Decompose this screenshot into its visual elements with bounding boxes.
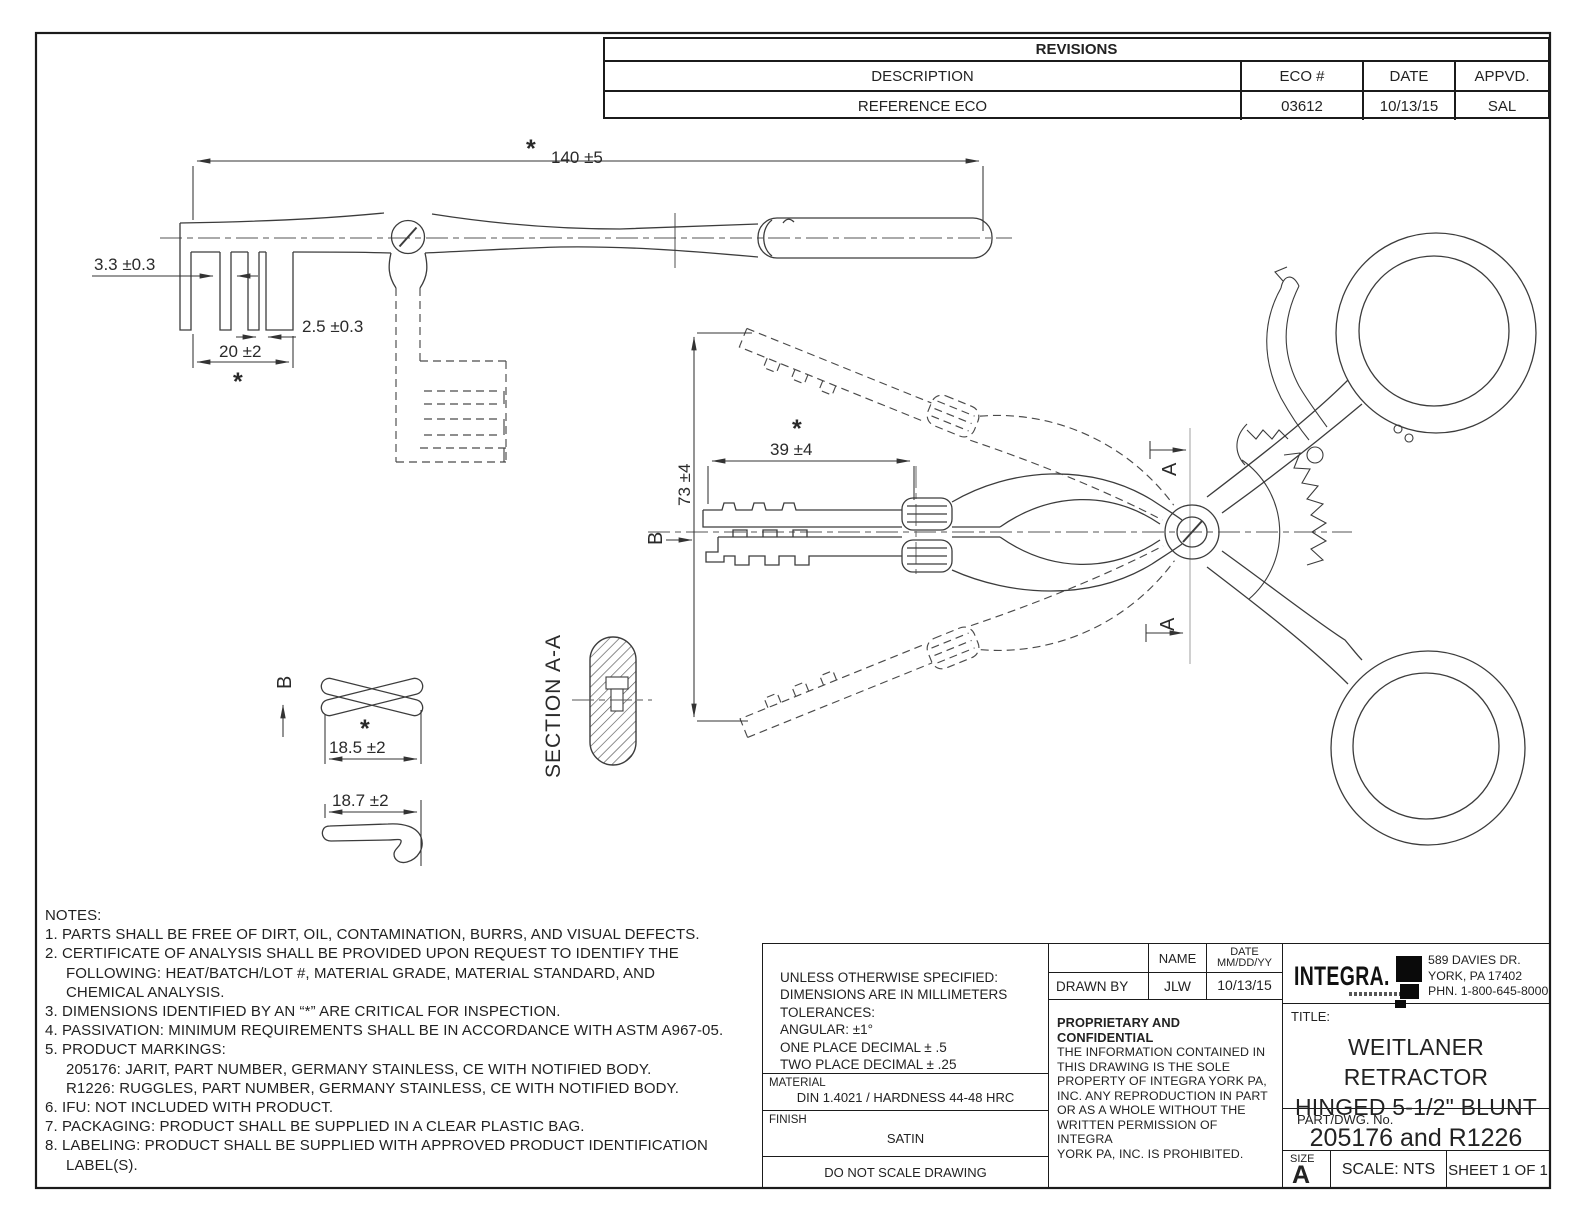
notes-line: 5. PRODUCT MARKINGS: <box>45 1040 755 1059</box>
size-scale-sheet-row: SIZE A SCALE: NTS SHEET 1 OF 1 <box>1283 1151 1549 1189</box>
col-eco: ECO # <box>1242 62 1364 90</box>
sheet-cell: SHEET 1 OF 1 <box>1447 1151 1549 1189</box>
open-arm-upper-dashed <box>736 302 1186 530</box>
revisions-table: REVISIONS DESCRIPTION ECO # DATE APPVD. … <box>603 37 1550 119</box>
drawn-by-row: DRAWN BY JLW 10/13/15 <box>1049 973 1282 1000</box>
logo-square-icon <box>1400 984 1419 999</box>
part-row: PART/DWG. No. 205176 and R1226 <box>1283 1109 1549 1151</box>
dim-tip-span-text: 18.5 ±2 <box>329 738 386 757</box>
critical-asterisk: * <box>792 415 802 443</box>
crossed-tips-outline <box>320 677 425 718</box>
dim-tine-width-text: 3.3 ±0.3 <box>94 255 155 274</box>
size-value: A <box>1292 1161 1310 1190</box>
dim-overall-length-text: 140 ±5 <box>551 148 603 167</box>
material-value: DIN 1.4021 / HARDNESS 44-48 HRC <box>763 1090 1048 1105</box>
proprietary-line: YORK PA, INC. IS PROHIBITED. <box>1057 1147 1276 1162</box>
tolerance-line: TWO PLACE DECIMAL ± .25 <box>780 1056 1048 1073</box>
material-label: MATERIAL <box>769 1077 826 1089</box>
revisions-header-row: DESCRIPTION ECO # DATE APPVD. <box>605 62 1548 92</box>
proprietary-line: THE INFORMATION CONTAINED IN <box>1057 1045 1276 1060</box>
handle-arms-and-rings <box>1207 233 1536 845</box>
dim-tip-span: * 18.5 ±2 <box>325 710 421 764</box>
col-appvd: APPVD. <box>1456 68 1548 85</box>
proprietary-title: PROPRIETARY AND CONFIDENTIAL <box>1057 1016 1276 1045</box>
hook-profile-outline <box>322 824 422 863</box>
section-aa: SECTION A-A <box>542 634 652 778</box>
titleblock-right: INTEGRA. 589 DAVIES DR. YORK, PA 17402 P… <box>1283 943 1550 1188</box>
section-arrow-A-bottom: A <box>1146 617 1183 642</box>
dim-tine-width: 3.3 ±0.3 <box>92 255 258 276</box>
retractor-body <box>703 474 1219 591</box>
material-row: MATERIAL DIN 1.4021 / HARDNESS 44-48 HRC <box>763 1074 1048 1111</box>
proprietary-line: OR AS A WHOLE WITHOUT THE <box>1057 1103 1276 1118</box>
detail-view-b: B * 18.5 ±2 18.7 ±2 <box>274 676 424 866</box>
drawn-by-name: JLW <box>1149 973 1207 999</box>
size-cell: SIZE A <box>1283 1151 1331 1189</box>
part-number: 205176 and R1226 <box>1283 1124 1549 1153</box>
logo-square-icon <box>1396 956 1422 982</box>
dim-blade-reach: * 39 ±4 <box>708 415 914 504</box>
company-row: INTEGRA. 589 DAVIES DR. YORK, PA 17402 P… <box>1283 944 1549 1004</box>
proprietary-block: PROPRIETARY AND CONFIDENTIAL THE INFORMA… <box>1049 1000 1282 1161</box>
dim-spread-text: 73 ±4 <box>675 464 694 506</box>
cut-label-A: A <box>1157 617 1179 631</box>
notes-line: 1. PARTS SHALL BE FREE OF DIRT, OIL, CON… <box>45 925 755 944</box>
logo-tagline <box>1349 992 1405 996</box>
notes-line: CHEMICAL ANALYSIS. <box>45 983 755 1002</box>
view-arrow-B-main: B <box>645 532 692 545</box>
view-label-B: B <box>645 532 667 545</box>
top-view-outline <box>180 213 992 330</box>
notes-line: 205176: JARIT, PART NUMBER, GERMANY STAI… <box>45 1060 755 1079</box>
section-aa-label: SECTION A-A <box>542 634 565 778</box>
dim-rake-length-text: 20 ±2 <box>219 342 261 361</box>
view-arrow-B-detail: B <box>274 676 296 737</box>
tolerance-line: DIMENSIONS ARE IN MILLIMETERS <box>780 986 1048 1003</box>
rev-description: REFERENCE ECO <box>605 92 1242 120</box>
proprietary-line: PROPERTY OF INTEGRA YORK PA, <box>1057 1074 1276 1089</box>
do-not-scale: DO NOT SCALE DRAWING <box>763 1157 1048 1187</box>
scale-cell: SCALE: NTS <box>1331 1151 1447 1189</box>
rev-eco: 03612 <box>1242 92 1364 120</box>
notes-line: LABEL(S). <box>45 1156 755 1175</box>
notes-line: FOLLOWING: HEAT/BATCH/LOT #, MATERIAL GR… <box>45 964 755 983</box>
notes-line: 2. CERTIFICATE OF ANALYSIS SHALL BE PROV… <box>45 944 755 963</box>
tolerance-block: UNLESS OTHERWISE SPECIFIED: DIMENSIONS A… <box>763 944 1048 1074</box>
proprietary-line: THIS DRAWING IS THE SOLE <box>1057 1060 1276 1075</box>
notes-block: NOTES: 1. PARTS SHALL BE FREE OF DIRT, O… <box>45 906 755 1175</box>
name-date-header: NAME DATE MM/DD/YY <box>1049 944 1282 973</box>
blank-cell <box>1049 944 1149 972</box>
critical-asterisk: * <box>526 135 536 163</box>
notes-line: 7. PACKAGING: PRODUCT SHALL BE SUPPLIED … <box>45 1117 755 1136</box>
finish-value: SATIN <box>763 1131 1048 1146</box>
open-arm-lower-dashed <box>736 537 1186 765</box>
section-arrow-A-top: A <box>1150 441 1186 476</box>
address-line: PHN. 1-800-645-8000 <box>1428 984 1548 1000</box>
main-view: A A B 73 ±4 * 39 ±4 <box>645 233 1536 845</box>
finish-row: FINISH SATIN <box>763 1111 1048 1157</box>
revisions-title: REVISIONS <box>605 39 1548 62</box>
dim-overall-length: * 140 ±5 <box>193 135 983 231</box>
dim-blade-reach-text: 39 ±4 <box>770 440 812 459</box>
proprietary-line: INC. ANY REPRODUCTION IN PART <box>1057 1089 1276 1104</box>
dim-rake-length: 20 ±2 * <box>193 334 293 396</box>
rev-date: 10/13/15 <box>1364 92 1456 120</box>
tolerance-line: TOLERANCES: <box>780 1004 1048 1021</box>
dim-hook-span-text: 18.7 ±2 <box>332 791 389 810</box>
critical-asterisk: * <box>233 368 243 396</box>
title-row: TITLE: WEITLANER RETRACTOR HINGED 5-1/2"… <box>1283 1004 1549 1109</box>
company-logo-text: INTEGRA. <box>1294 961 1390 992</box>
company-address: 589 DAVIES DR. YORK, PA 17402 PHN. 1-800… <box>1428 953 1548 1000</box>
drawing-title-line1: WEITLANER RETRACTOR <box>1283 1032 1549 1092</box>
address-line: YORK, PA 17402 <box>1428 969 1548 985</box>
top-view: * 140 ±5 3.3 ±0.3 2.5 ±0.3 20 ±2 * <box>92 135 1012 462</box>
notes-line: NOTES: <box>45 906 755 925</box>
tolerance-line: UNLESS OTHERWISE SPECIFIED: <box>780 969 1048 986</box>
ratchet-mechanism <box>1237 267 1413 599</box>
notes-line: 4. PASSIVATION: MINIMUM REQUIREMENTS SHA… <box>45 1021 755 1040</box>
notes-line: 3. DIMENSIONS IDENTIFIED BY AN “*” ARE C… <box>45 1002 755 1021</box>
titleblock-left: UNLESS OTHERWISE SPECIFIED: DIMENSIONS A… <box>762 943 1049 1188</box>
name-col-header: NAME <box>1149 944 1207 972</box>
date-col-header: DATE MM/DD/YY <box>1207 944 1282 972</box>
notes-line: 6. IFU: NOT INCLUDED WITH PRODUCT. <box>45 1098 755 1117</box>
tolerance-line: ONE PLACE DECIMAL ± .5 <box>780 1039 1048 1056</box>
cut-label-A: A <box>1159 462 1181 476</box>
address-line: 589 DAVIES DR. <box>1428 953 1548 969</box>
notes-line: R1226: RUGGLES, PART NUMBER, GERMANY STA… <box>45 1079 755 1098</box>
drawn-by-label: DRAWN BY <box>1049 973 1149 999</box>
date-col-format: MM/DD/YY <box>1217 958 1272 970</box>
dim-hook-span: 18.7 ±2 <box>325 791 421 866</box>
title-label: TITLE: <box>1291 1009 1330 1024</box>
notes-line: 8. LABELING: PRODUCT SHALL BE SUPPLIED W… <box>45 1136 755 1155</box>
col-description: DESCRIPTION <box>605 62 1242 90</box>
view-label-B: B <box>274 676 296 689</box>
finish-label: FINISH <box>769 1114 807 1126</box>
revisions-data-row: REFERENCE ECO 03612 10/13/15 SAL <box>605 92 1548 120</box>
proprietary-line: WRITTEN PERMISSION OF INTEGRA <box>1057 1118 1276 1147</box>
dim-tine-spacing: 2.5 ±0.3 <box>236 317 363 337</box>
titleblock-middle: NAME DATE MM/DD/YY DRAWN BY JLW 10/13/15… <box>1049 943 1283 1188</box>
drawn-by-date: 10/13/15 <box>1207 973 1282 999</box>
rev-appvd: SAL <box>1456 98 1548 115</box>
col-date: DATE <box>1364 62 1456 90</box>
top-view-hidden-arm <box>396 288 506 462</box>
tolerance-line: ANGULAR: ±1° <box>780 1021 1048 1038</box>
dim-tine-spacing-text: 2.5 ±0.3 <box>302 317 363 336</box>
